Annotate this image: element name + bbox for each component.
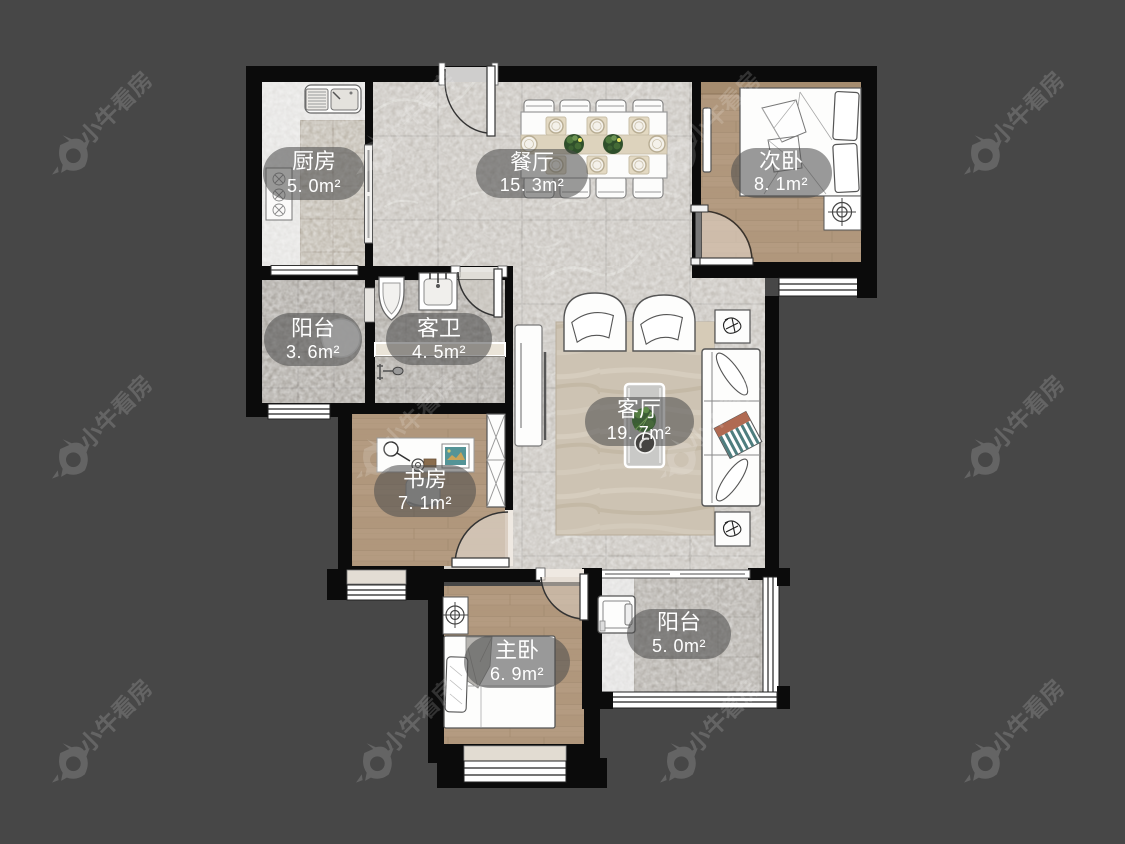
svg-text:8. 1m²: 8. 1m² [754,174,808,194]
svg-text:5. 0m²: 5. 0m² [287,176,341,196]
svg-text:3. 6m²: 3. 6m² [286,342,340,362]
svg-text:5. 0m²: 5. 0m² [652,636,706,656]
svg-text:15. 3m²: 15. 3m² [500,175,565,195]
svg-text:4. 5m²: 4. 5m² [412,342,466,362]
svg-text:19. 7m²: 19. 7m² [607,423,672,443]
svg-text:6. 9m²: 6. 9m² [490,664,544,684]
svg-text:7. 1m²: 7. 1m² [398,493,452,513]
